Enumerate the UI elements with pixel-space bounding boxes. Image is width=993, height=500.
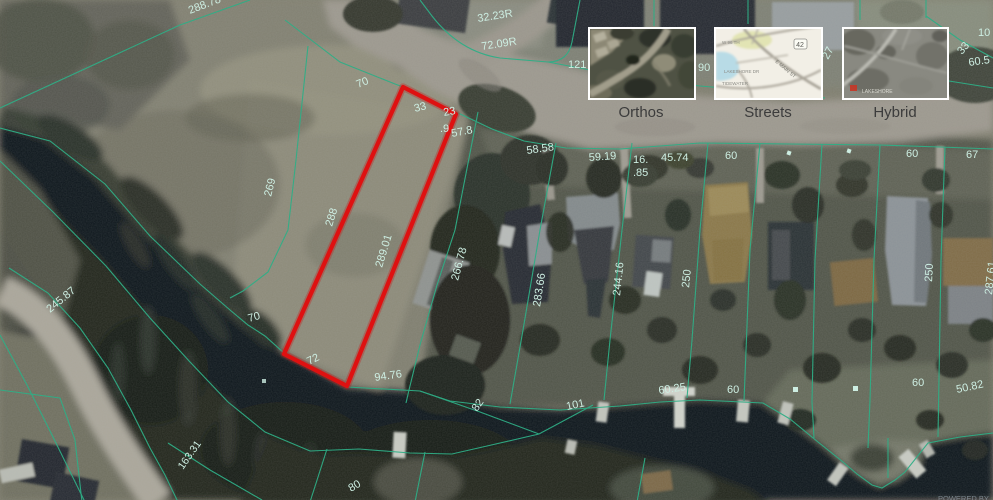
svg-text:60: 60 [727, 384, 739, 396]
svg-text:Orthos: Orthos [618, 104, 663, 121]
svg-text:90: 90 [698, 62, 710, 74]
svg-text:60: 60 [912, 377, 924, 389]
svg-text:.85: .85 [633, 167, 648, 179]
svg-text:60: 60 [725, 150, 737, 162]
svg-text:Hybrid: Hybrid [873, 104, 916, 121]
svg-text:TIDEWATER: TIDEWATER [722, 81, 749, 86]
svg-text:42: 42 [796, 42, 804, 49]
svg-text:16.: 16. [633, 154, 648, 166]
svg-text:250: 250 [923, 263, 936, 282]
svg-text:60: 60 [906, 148, 918, 160]
svg-text:W 96 TH: W 96 TH [722, 40, 740, 45]
svg-text:250: 250 [680, 269, 694, 289]
svg-text:23: 23 [442, 105, 456, 119]
svg-text:59.19: 59.19 [588, 150, 616, 164]
svg-text:POWERED BY: POWERED BY [938, 494, 989, 500]
svg-text:.9: .9 [440, 123, 449, 135]
svg-text:67: 67 [966, 149, 978, 161]
svg-text:LAKESHORE: LAKESHORE [862, 89, 893, 95]
svg-text:121: 121 [568, 59, 586, 71]
svg-text:LAKESHORE DR: LAKESHORE DR [724, 69, 760, 74]
svg-text:Streets: Streets [744, 104, 792, 121]
svg-text:45.74: 45.74 [661, 152, 689, 164]
svg-text:10: 10 [978, 27, 990, 39]
